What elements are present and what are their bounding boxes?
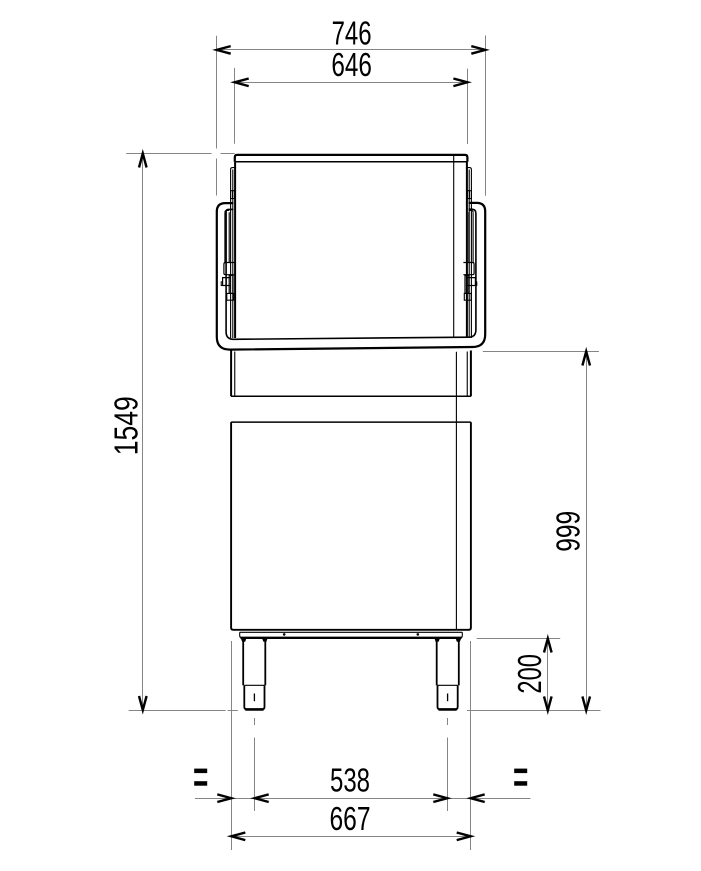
svg-text:1549: 1549 — [108, 396, 145, 455]
svg-text:646: 646 — [331, 46, 372, 83]
svg-text:200: 200 — [511, 654, 548, 694]
svg-text:999: 999 — [549, 511, 586, 552]
svg-text:538: 538 — [330, 761, 370, 798]
svg-text:667: 667 — [330, 800, 371, 837]
